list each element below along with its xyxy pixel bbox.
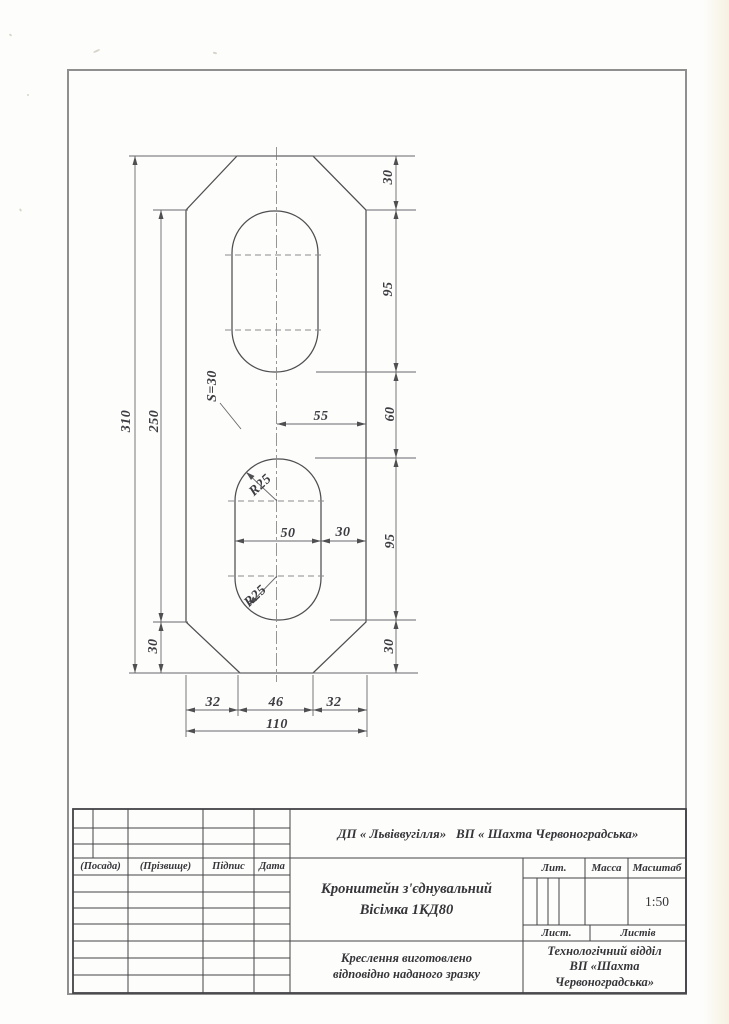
bracket-outline-group: [186, 156, 366, 673]
org-name: ДП « Львіввугілля» ВП « Шахта Червоногра…: [291, 810, 685, 857]
sheet-header: Лист.: [523, 925, 590, 941]
dim-30-bottom-right: 30: [382, 639, 397, 655]
dim-50: 50: [281, 526, 296, 541]
part-title-line1: Кронштейн з'єднувальний: [321, 879, 492, 899]
department-line3: Червоноградська»: [555, 975, 654, 990]
slot-hole-upper: [232, 211, 318, 372]
note-cell: Креслення виготовлено відповідно наданог…: [291, 941, 522, 993]
column-header-data: Дата: [255, 858, 289, 875]
column-header-prizvyshche: (Прізвище): [129, 858, 202, 875]
dim-46: 46: [268, 695, 284, 710]
extension-lines: [129, 156, 418, 737]
mass-header: Масса: [585, 858, 628, 878]
scale-header: Масштаб: [628, 858, 686, 878]
dim-32-right: 32: [326, 695, 342, 710]
dim-95-bottom: 95: [383, 534, 398, 549]
dim-55: 55: [314, 409, 329, 424]
dim-110: 110: [266, 717, 288, 732]
department-line1: Технологічний відділ: [547, 944, 661, 959]
leader-thickness: [220, 403, 241, 429]
dim-310: 310: [119, 410, 134, 434]
part-title: Кронштейн з'єднувальний Вісімка 1КД80: [291, 859, 522, 940]
scanned-drawing-sheet: { "drawing": { "dim_310": "310", "dim_25…: [0, 0, 729, 1024]
department-line2: ВП «Шахта: [570, 959, 640, 974]
dim-32-left: 32: [205, 695, 221, 710]
dim-30-left: 30: [146, 639, 161, 655]
note-line2: відповідно наданого зразку: [333, 967, 480, 983]
dim-95-top: 95: [381, 282, 396, 297]
dim-30-mid: 30: [335, 525, 351, 540]
thickness-label: S=30: [205, 370, 220, 402]
scale-value: 1:50: [628, 878, 686, 925]
department-cell: Технологічний відділ ВП «Шахта Червоногр…: [523, 941, 686, 993]
dimension-arrows: [133, 156, 399, 734]
column-header-posada: (Посада): [74, 858, 127, 875]
part-title-line2: Вісімка 1КД80: [360, 900, 453, 920]
note-line1: Креслення виготовлено: [341, 951, 472, 967]
radius-label-lower: R25: [241, 582, 270, 611]
lit-header: Лит.: [523, 858, 585, 878]
dim-30-top-right: 30: [381, 170, 396, 186]
dim-60: 60: [383, 407, 398, 422]
bracket-plate-outline: [186, 156, 366, 673]
dimension-lines: [135, 156, 396, 731]
column-header-pidpys: Підпис: [204, 858, 253, 875]
sheets-header: Листів: [590, 925, 686, 941]
dim-250: 250: [147, 410, 162, 434]
